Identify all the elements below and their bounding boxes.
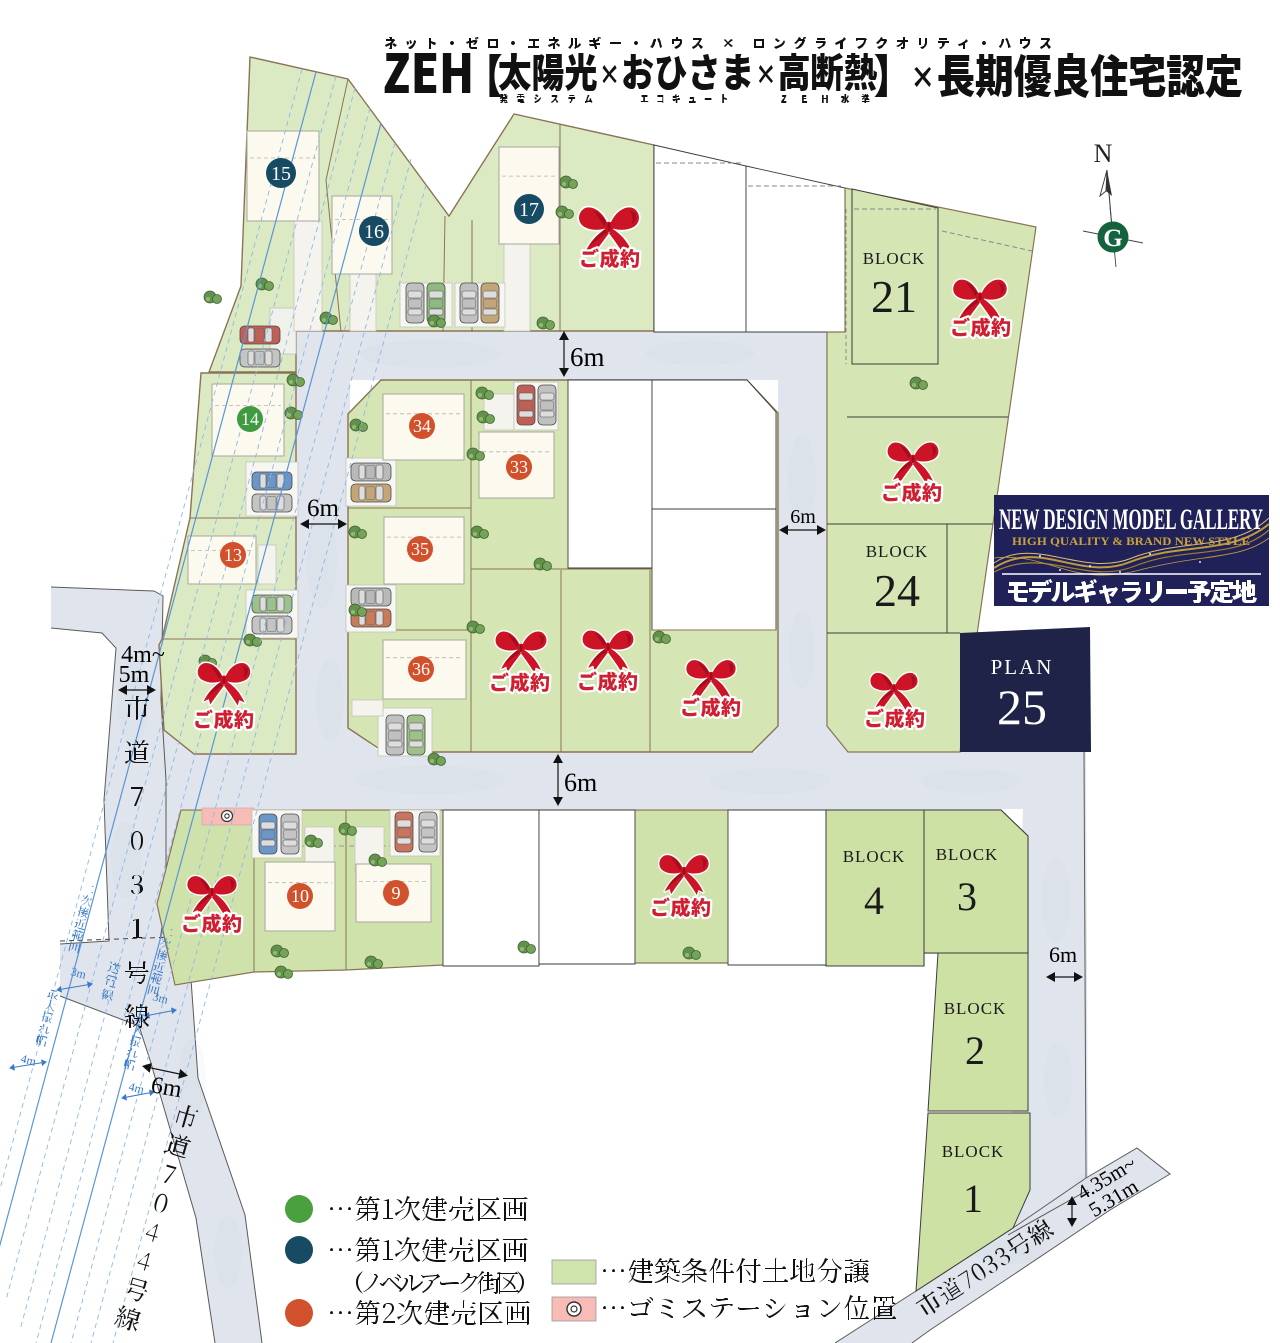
svg-text:17: 17 xyxy=(519,199,539,221)
svg-text:9: 9 xyxy=(392,883,401,903)
svg-text:10: 10 xyxy=(291,886,309,906)
svg-text:BLOCK: BLOCK xyxy=(936,845,999,864)
svg-text:HIGH QUALITY & BRAND NEW STYLE: HIGH QUALITY & BRAND NEW STYLE xyxy=(1012,534,1250,548)
svg-text:3: 3 xyxy=(957,874,977,919)
svg-text:6m: 6m xyxy=(564,768,597,797)
svg-text:5m: 5m xyxy=(119,662,150,688)
svg-text:4: 4 xyxy=(864,878,884,923)
svg-text:6m: 6m xyxy=(790,506,816,528)
svg-text:6m: 6m xyxy=(570,342,605,372)
svg-text:25: 25 xyxy=(997,679,1047,735)
svg-text:6m: 6m xyxy=(1049,942,1077,967)
svg-text:13: 13 xyxy=(224,545,242,565)
svg-text:14: 14 xyxy=(241,409,259,429)
svg-text:21: 21 xyxy=(871,271,917,322)
svg-text:24: 24 xyxy=(874,565,920,616)
svg-text:BLOCK: BLOCK xyxy=(863,249,926,268)
svg-text:6m: 6m xyxy=(149,1072,184,1103)
svg-text:2: 2 xyxy=(965,1028,985,1073)
svg-text:BLOCK: BLOCK xyxy=(843,847,906,866)
svg-text:PLAN: PLAN xyxy=(991,655,1054,679)
svg-text:6m: 6m xyxy=(307,495,340,522)
svg-text:34: 34 xyxy=(413,416,431,436)
svg-text:NEW DESIGN MODEL GALLERY: NEW DESIGN MODEL GALLERY xyxy=(999,503,1263,536)
svg-text:BLOCK: BLOCK xyxy=(944,999,1007,1018)
svg-text:36: 36 xyxy=(412,659,430,679)
svg-text:1: 1 xyxy=(963,1176,983,1221)
svg-text:N: N xyxy=(1094,139,1113,168)
svg-text:16: 16 xyxy=(364,221,384,243)
svg-text:BLOCK: BLOCK xyxy=(942,1142,1005,1161)
svg-text:15: 15 xyxy=(271,163,291,185)
svg-text:G: G xyxy=(1103,225,1122,252)
svg-text:BLOCK: BLOCK xyxy=(866,542,929,561)
svg-text:35: 35 xyxy=(411,539,429,559)
svg-text:33: 33 xyxy=(510,457,528,477)
